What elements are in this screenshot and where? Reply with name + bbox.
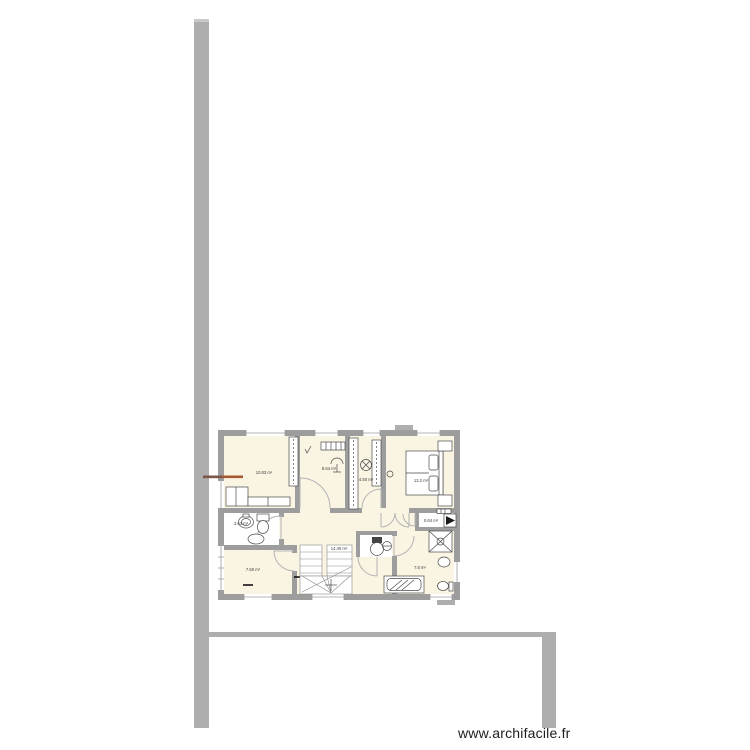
wardrobe-icon [372, 440, 381, 486]
room-area-label: 7.6 m² [414, 565, 426, 570]
room-area-label: 4.50 m² [359, 477, 374, 482]
window-bottom-1 [244, 594, 272, 600]
sink-icon [438, 557, 450, 567]
watermark-text: www.archifacile.fr [458, 725, 568, 741]
window-left-1 [218, 481, 224, 508]
boundary-wall-bottom[interactable] [194, 632, 556, 637]
boundary-wall-right[interactable] [542, 633, 556, 728]
radiator-icon [321, 442, 345, 450]
measure-marker[interactable] [203, 476, 243, 479]
room-area-label: 0.64 m² [424, 518, 439, 523]
window-top-4 [417, 430, 440, 436]
plan-canvas: 10.83 m² 8.64 m² 4.50 m² 13.2 m² 3.63 m²… [0, 0, 750, 750]
wardrobe-icon [349, 438, 358, 509]
window-top-1 [246, 430, 285, 436]
room-area-label: 10.83 m² [256, 470, 273, 475]
room-area-label: 14.40 m² [331, 546, 348, 551]
window-top-3 [363, 430, 380, 436]
nightstand-icon [438, 441, 452, 451]
window-left-2 [218, 546, 224, 590]
shower-icon [429, 531, 452, 552]
room-area-label: 3.63 m² [234, 521, 249, 526]
window-bottom-3 [430, 594, 452, 600]
radiator-icon [437, 509, 451, 514]
room-area-label: 13.2 m² [414, 478, 429, 483]
wardrobe-icon [289, 437, 298, 486]
nightstand-icon [438, 495, 452, 506]
window-bottom-2 [312, 594, 344, 600]
toilet-icon [438, 582, 454, 592]
floorplan-drawing: 10.83 m² 8.64 m² 4.50 m² 13.2 m² 3.63 m²… [0, 0, 750, 750]
window-right-1 [454, 562, 460, 582]
room-area-label: 8.64 m² [322, 466, 337, 471]
room-area-label: 7.50 m² [246, 567, 261, 572]
toilet-icon [257, 514, 269, 534]
toilet-icon [371, 537, 384, 556]
bathtub-icon [384, 576, 424, 593]
bed-icon [406, 451, 443, 495]
bidet-icon [248, 534, 264, 544]
water-heater-icon [444, 514, 456, 527]
boundary-wall-left[interactable] [194, 19, 209, 728]
window-top-2 [315, 430, 338, 436]
